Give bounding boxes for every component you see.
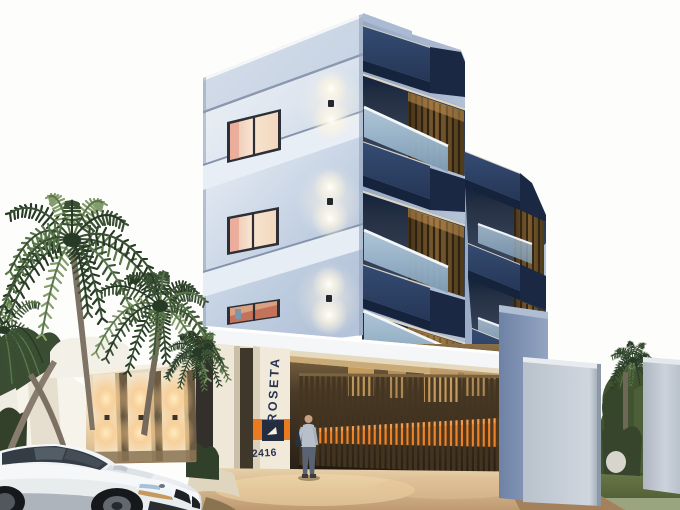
svg-text:2416: 2416 bbox=[252, 447, 278, 460]
